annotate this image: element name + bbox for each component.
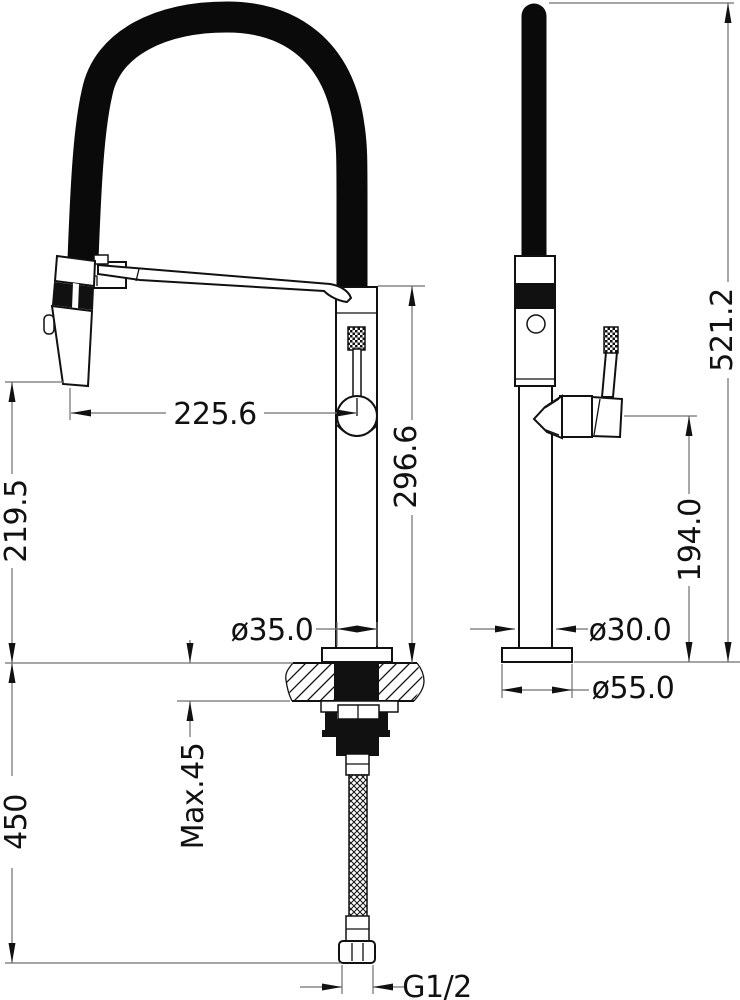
- spray-mode-button: [44, 315, 54, 334]
- dim-thread-size: G1/2: [300, 965, 472, 1000]
- dim-overall-height: 521.2: [549, 3, 740, 662]
- handle-stem-side: [602, 352, 617, 397]
- dim-supply-hose-length: 450: [0, 663, 341, 963]
- hose-arc-front: [83, 17, 352, 290]
- spray-head-body: [52, 306, 92, 386]
- faucet-body-front: [336, 287, 377, 648]
- side-view: [502, 16, 622, 662]
- dim-deck-hole-dia-label: ø35.0: [231, 613, 314, 648]
- countertop-section: [250, 648, 467, 706]
- supply-hose: [339, 754, 375, 963]
- handle-knurl-front: [348, 327, 365, 350]
- dim-spout-reach: 225.6: [70, 388, 357, 432]
- base-plate-side: [502, 648, 572, 662]
- dim-max-deck-thickness-label: Max.45: [176, 743, 211, 850]
- dim-body-top-height-label: 296.6: [389, 425, 424, 508]
- faucet-technical-drawing: 219.5 450 225.6 296.6: [0, 0, 740, 1000]
- dim-base-dia-label: ø55.0: [592, 671, 675, 706]
- body-port-hole: [527, 315, 545, 333]
- spout-arm: [98, 265, 351, 302]
- dim-supply-hose-length-label: 450: [0, 794, 34, 850]
- dim-body-top-height: 296.6: [378, 286, 425, 663]
- handle-knurl-side: [604, 327, 618, 353]
- dim-handle-height-label: 194.0: [673, 498, 708, 581]
- dim-thread-size-label: G1/2: [402, 970, 472, 1000]
- braided-hose: [349, 775, 367, 918]
- dim-body-dia-label: ø30.0: [589, 613, 672, 648]
- faucet-body-side: [515, 256, 555, 648]
- threaded-shank: [334, 662, 379, 702]
- dim-spout-outlet-height: 219.5: [0, 382, 64, 663]
- spray-head-assembly: [44, 255, 351, 386]
- mounting-nut-block: [336, 719, 379, 756]
- connector-nut: [339, 941, 375, 963]
- dim-spout-outlet-height-label: 219.5: [0, 479, 34, 562]
- grip-ring-side: [515, 283, 555, 309]
- dim-base-dia: ø55.0: [502, 664, 674, 706]
- dim-max-deck-thickness: Max.45: [5, 640, 293, 849]
- dim-body-dia: ø30.0: [470, 613, 671, 648]
- spray-head: [44, 256, 95, 386]
- dim-spout-reach-label: 225.6: [173, 397, 256, 432]
- faucet-technical-drawing-page: 219.5 450 225.6 296.6: [0, 0, 740, 1000]
- mounting-hardware: [321, 701, 398, 756]
- mounting-flange: [322, 648, 392, 662]
- dim-overall-height-label: 521.2: [705, 288, 740, 371]
